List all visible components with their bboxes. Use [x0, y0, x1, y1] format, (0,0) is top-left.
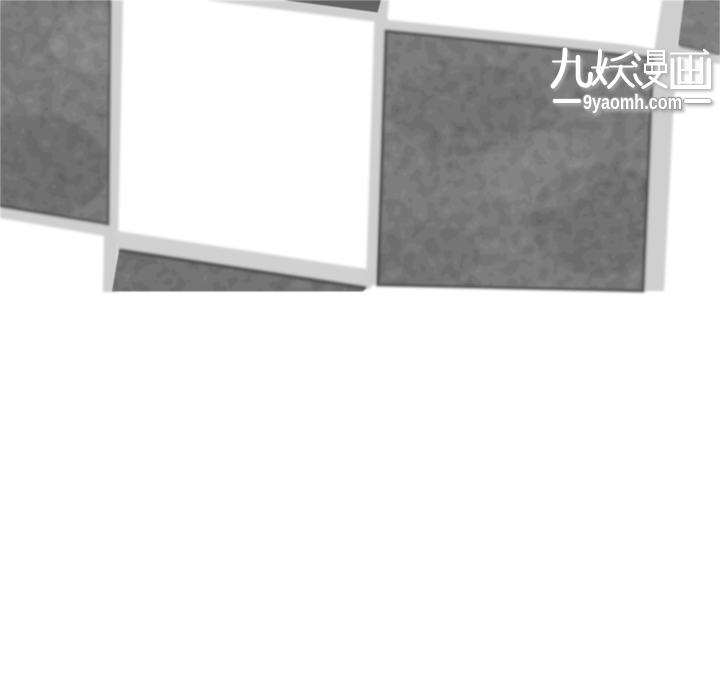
- svg-text:9yaomh.com: 9yaomh.com: [583, 91, 682, 114]
